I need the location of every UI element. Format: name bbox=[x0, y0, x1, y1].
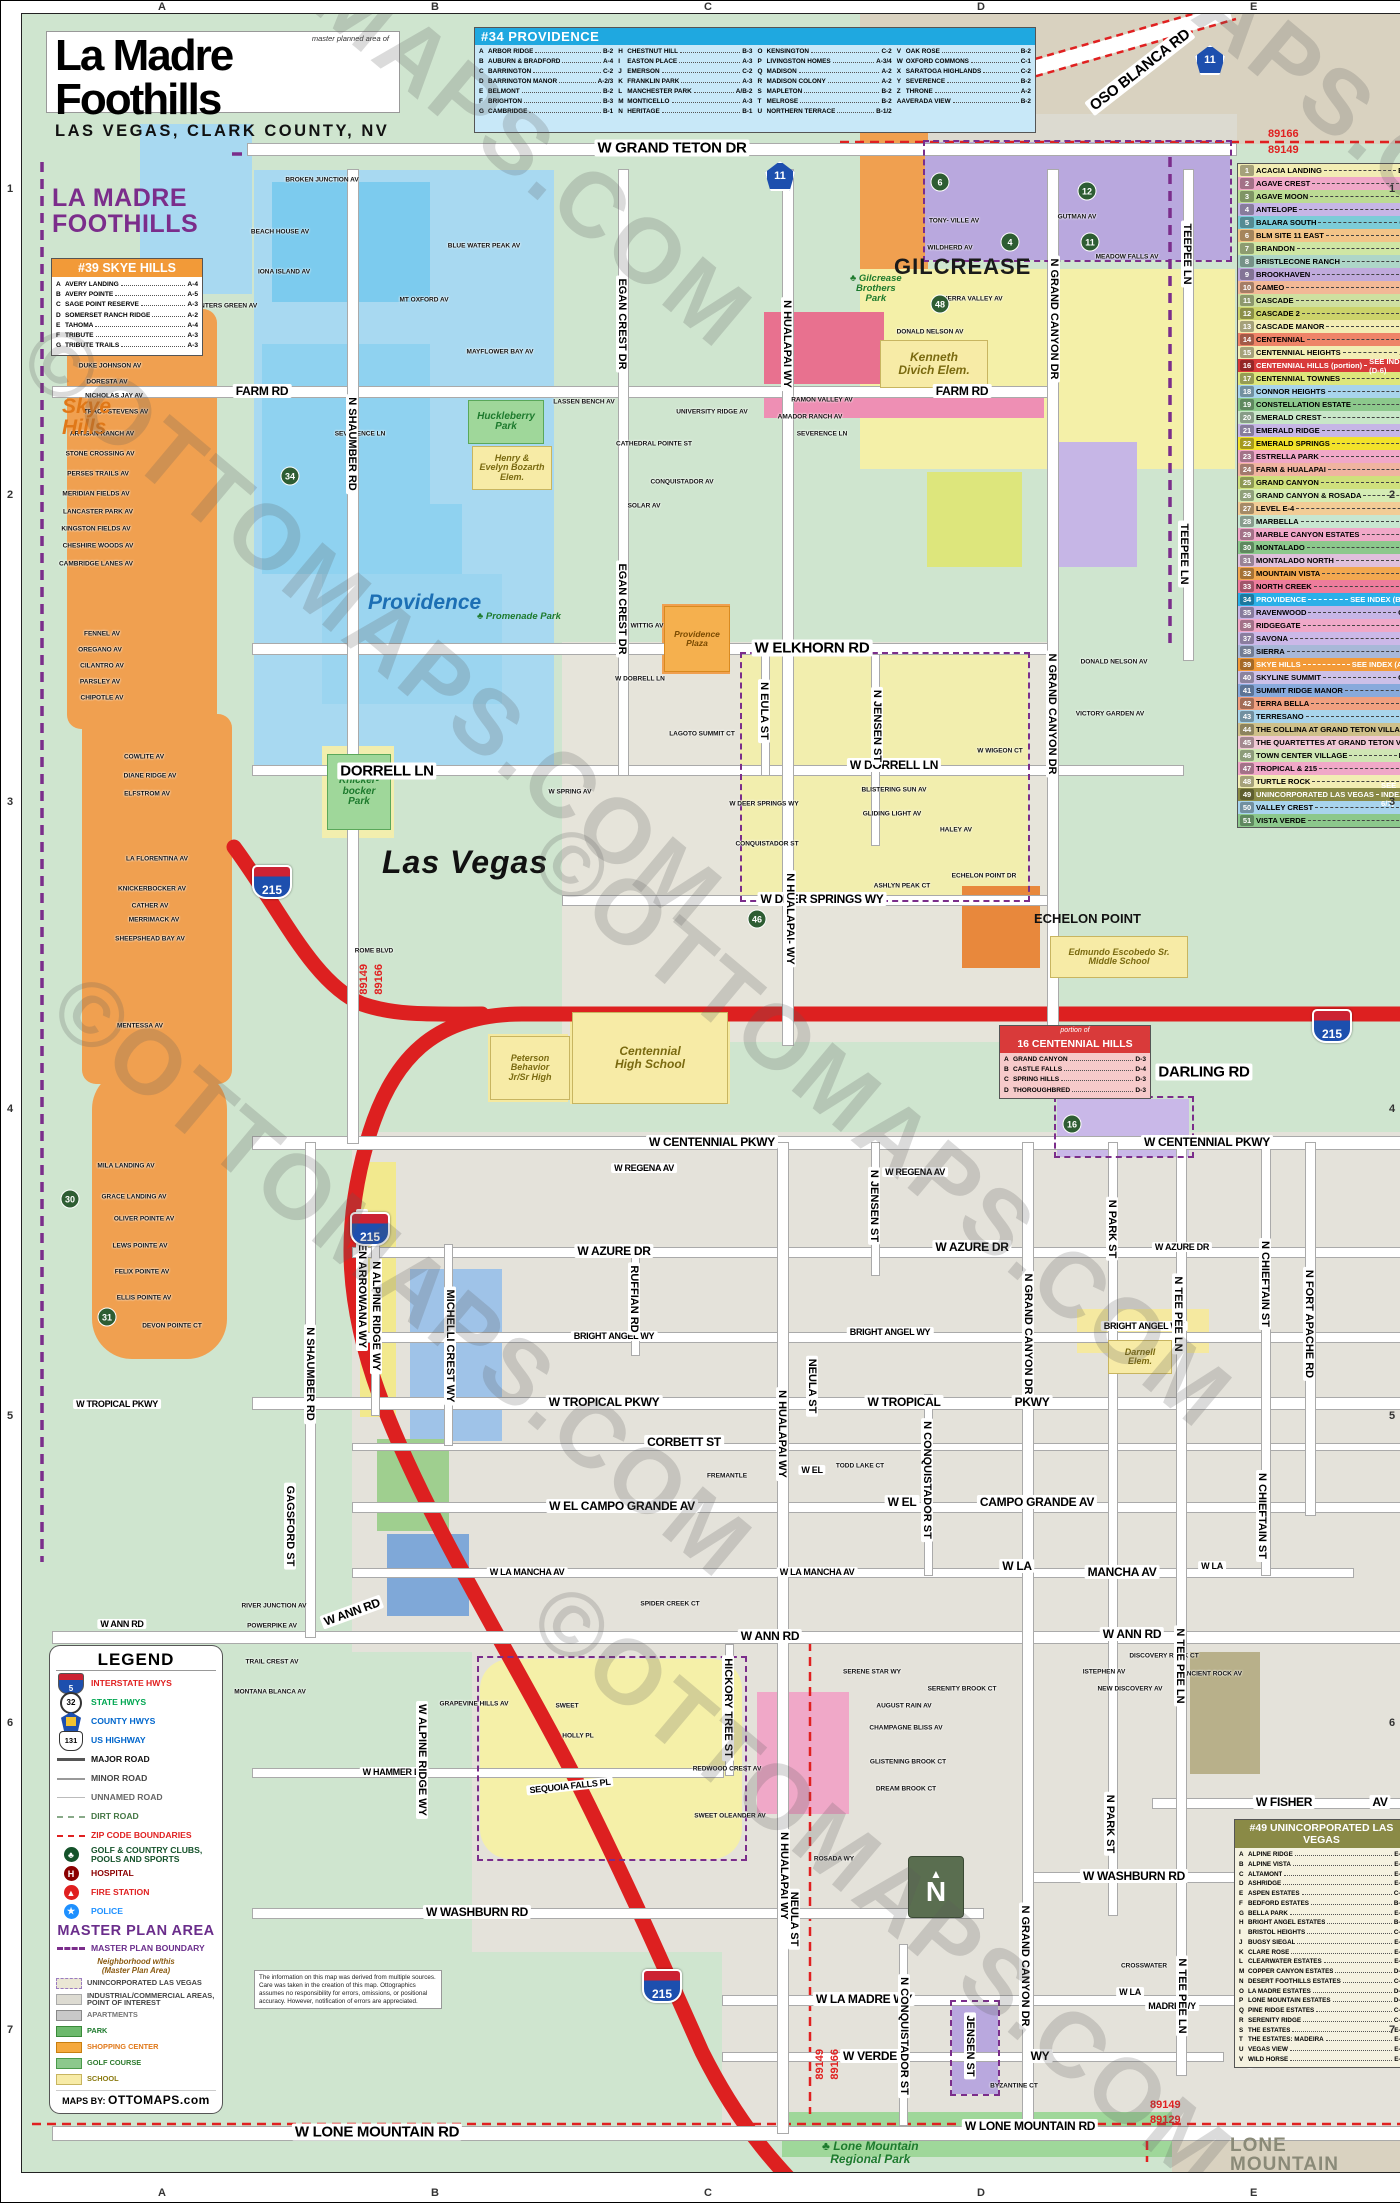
index-entry-letter: G bbox=[479, 107, 488, 117]
index-entry-ref: E-5 bbox=[1394, 1879, 1400, 1889]
community-index-row: 47TROPICAL & 215B-5 bbox=[1238, 762, 1400, 775]
index-entry-ref: E-5 bbox=[1394, 1850, 1400, 1860]
index-entry-name: CASTLE FALLS bbox=[1013, 1065, 1062, 1075]
community-index-leader bbox=[1345, 690, 1400, 691]
index-entry-letter: M bbox=[618, 97, 627, 107]
community-index-name: RAVENWOOD bbox=[1256, 608, 1306, 617]
community-index-row: 40SKYLINE SUMMITC/D-4 bbox=[1238, 671, 1400, 684]
index-entry: B ALPINE VISTAE-5 bbox=[1239, 1860, 1400, 1870]
index-entry: V WILD HORSEE-6 bbox=[1239, 2055, 1400, 2065]
zip-code-label: 89166 bbox=[829, 2049, 841, 2080]
index-entry-letter: B bbox=[1004, 1065, 1013, 1075]
community-index-name: BRISTLECONE RANCH bbox=[1256, 257, 1340, 266]
index-entry-letter: W bbox=[897, 57, 906, 67]
community-index-row: 36RIDGEGATEE-3 bbox=[1238, 619, 1400, 632]
street-label: GLIDING LIGHT AV bbox=[863, 811, 922, 818]
poi-circle-icon: H bbox=[64, 1866, 79, 1881]
legend-road-icon bbox=[56, 1778, 86, 1780]
index-entry-leader bbox=[811, 52, 879, 53]
street-label: MEADOW FALLS AV bbox=[1096, 254, 1159, 261]
index-entry: L MANCHESTER PARKA/B-2 bbox=[618, 87, 752, 97]
community-index-row: 34PROVIDENCESEE INDEX (B-D-1) bbox=[1238, 593, 1400, 606]
community-index-row: 6BLM SITE 11 EASTB-5 bbox=[1238, 229, 1400, 242]
index-entry-ref: B-2 bbox=[603, 87, 613, 97]
street-label: LA FLORENTINA AV bbox=[126, 856, 188, 863]
index-entry-leader bbox=[95, 326, 185, 327]
road-label: HICKORY TREE ST bbox=[722, 1655, 734, 1761]
community-index-row: 50VALLEY CRESTE-2 bbox=[1238, 801, 1400, 814]
index-entry-letter: R bbox=[758, 77, 767, 87]
index-entry-leader bbox=[833, 62, 874, 63]
road-label: DARLING RD bbox=[1155, 1064, 1252, 1081]
index-entry-name: KENSINGTON bbox=[767, 47, 810, 57]
road-label: W ANN RD bbox=[97, 1619, 146, 1629]
community-index-name: MARBLE CANYON ESTATES bbox=[1256, 530, 1360, 539]
road-label: W DORRELL LN bbox=[847, 758, 941, 772]
road-label: N SHAUMBER RD bbox=[346, 394, 358, 494]
street-label: MERRIMACK AV bbox=[129, 917, 180, 924]
community-index-leader bbox=[1297, 248, 1400, 249]
index-entry-ref: B-1/2 bbox=[876, 107, 892, 117]
community-index-number: 22 bbox=[1240, 438, 1254, 449]
grid-row-label: 3 bbox=[7, 796, 13, 808]
index-entry: D THOROUGHBREDD-3 bbox=[1004, 1086, 1146, 1096]
index-entry-name: MAPLETON bbox=[767, 87, 803, 97]
legend-swatch-item: SHOPPING CENTER bbox=[56, 2039, 216, 2055]
index-entry-letter: C bbox=[56, 300, 65, 310]
index-entry-name: HERITAGE bbox=[627, 107, 660, 117]
road-label: W CENTENNIAL PKWY bbox=[1141, 1135, 1273, 1149]
community-index-leader bbox=[1306, 716, 1400, 717]
community-index-name: CAMEO bbox=[1256, 283, 1284, 292]
index-entry-name: AVERY LANDING bbox=[65, 280, 119, 290]
grid-column-label: E bbox=[1250, 2187, 1257, 2199]
legend-road-label: MINOR ROAD bbox=[91, 1774, 147, 1783]
community-index-name: CASCADE 2 bbox=[1256, 309, 1300, 318]
index-entry: H BRIGHT ANGEL ESTATESB-5 bbox=[1239, 1918, 1400, 1928]
community-index-leader bbox=[1323, 417, 1400, 418]
index-entry-leader bbox=[1293, 1865, 1392, 1866]
community-index-leader bbox=[1376, 794, 1379, 795]
zip-code-label: 89149 bbox=[1268, 144, 1299, 156]
index-entry-name: BELMONT bbox=[488, 87, 520, 97]
index-entry-letter: B bbox=[56, 290, 65, 300]
street-label: SERENE STAR WY bbox=[843, 1669, 901, 1676]
index-entry: B AVERY POINTEA-5 bbox=[56, 290, 198, 300]
community-index-row: 46TOWN CENTER VILLAGED/E-3 bbox=[1238, 749, 1400, 762]
community-index-name: SUMMIT RIDGE MANOR bbox=[1256, 686, 1343, 695]
road-label: FARM RD bbox=[233, 384, 292, 398]
community-index-row: 1ACACIA LANDINGB/C-6 bbox=[1238, 164, 1400, 177]
community-index-number: 31 bbox=[1240, 555, 1254, 566]
index-entry: X SARATOGA HIGHLANDSC-2 bbox=[897, 67, 1031, 77]
street-label: UNIVERSITY RIDGE AV bbox=[676, 409, 747, 416]
index-entry-ref: D-5 bbox=[1394, 1967, 1400, 1977]
map-canvas: master planned area of La Madre Foothill… bbox=[21, 13, 1400, 2173]
street-label: HALEY AV bbox=[940, 827, 972, 834]
index-entry: B AUBURN & BRADFORDA-4 bbox=[479, 57, 613, 67]
legend-poi-item: ♣GOLF & COUNTRY CLUBS, POOLS AND SPORTS bbox=[56, 1845, 216, 1864]
community-index-name: CONSTELLATION ESTATE bbox=[1256, 400, 1351, 409]
community-index-number: 17 bbox=[1240, 373, 1254, 384]
community-index-name: BLM SITE 11 EAST bbox=[1256, 231, 1324, 240]
index-entry: N DESERT FOOTHILLS ESTATESC-6 bbox=[1239, 1977, 1400, 1987]
community-index-row: 39SKYE HILLSSEE INDEX (A-1/2) bbox=[1238, 658, 1400, 671]
index-entry-ref: C-5 bbox=[1394, 1889, 1400, 1899]
community-number-badge: 46 bbox=[748, 910, 767, 929]
street-label: BLISTERING SUN AV bbox=[861, 787, 926, 794]
street-label: FELIX POINTE AV bbox=[115, 1269, 170, 1276]
road-label: W GRAND TETON DR bbox=[594, 140, 749, 157]
legend-swatch bbox=[56, 2010, 82, 2021]
community-index-number: 29 bbox=[1240, 529, 1254, 540]
community-index-number: 48 bbox=[1240, 776, 1254, 787]
index-entry: N HERITAGEB-1 bbox=[618, 107, 752, 117]
street-label: WILDHERD AV bbox=[927, 245, 972, 252]
index-entry-letter: H bbox=[1239, 1918, 1248, 1928]
index-entry: F TRIBUTEA-3 bbox=[56, 331, 198, 341]
index-entry-letter: I bbox=[618, 57, 627, 67]
index-entry-name: PINE RIDGE ESTATES bbox=[1248, 2006, 1314, 2016]
grid-row-label: 7 bbox=[1389, 2024, 1395, 2036]
index-entry-name: SARATOGA HIGHLANDS bbox=[906, 67, 982, 77]
index-entry-letter: U bbox=[1239, 2045, 1248, 2055]
street-label: SERENITY BROOK CT bbox=[928, 1686, 997, 1693]
street-label: CHIPOTLE AV bbox=[81, 695, 124, 702]
index-entry: B CASTLE FALLSD-4 bbox=[1004, 1065, 1146, 1075]
index-entry-ref: E-6 bbox=[1394, 2035, 1400, 2045]
index-entry-ref: B-2 bbox=[881, 87, 891, 97]
map-subtitle: LAS VEGAS, CLARK COUNTY, NV bbox=[55, 122, 391, 141]
community-index-row: 42TERRA BELLAD-2 bbox=[1238, 697, 1400, 710]
index-entry-ref: C-5 bbox=[1394, 1928, 1400, 1938]
road-label: W AZURE DR bbox=[932, 1240, 1011, 1254]
master-plan-note: Neighborhood w/this (Master Plan Area) bbox=[56, 1958, 216, 1975]
community-index-row: 38SIERRAD-6 bbox=[1238, 645, 1400, 658]
road-label: N HUALAPAI- WY bbox=[784, 870, 796, 967]
legend-swatch-item: SCHOOL bbox=[56, 2071, 216, 2087]
community-index-leader bbox=[1343, 352, 1398, 353]
road-label: W REGENA AV bbox=[611, 1163, 677, 1173]
legend-highway-item: 131US HIGHWAY bbox=[56, 1731, 216, 1750]
index-entry-leader bbox=[152, 316, 185, 317]
road-label: CAMPO GRANDE AV bbox=[977, 1495, 1097, 1509]
legend-road-icon bbox=[56, 1758, 86, 1761]
index-entry: L CLEARWATER ESTATESE-5 bbox=[1239, 1957, 1400, 1967]
index-entry: O KENSINGTONC-2 bbox=[758, 47, 892, 57]
road-label: N ALPINE RIDGE WY bbox=[370, 1258, 382, 1374]
index-entry-leader bbox=[1326, 2040, 1393, 2041]
index-entry-leader bbox=[1302, 1894, 1392, 1895]
index-entry: AA VERADA VIEWB-2 bbox=[897, 97, 1031, 107]
index-entry-leader bbox=[1290, 1914, 1392, 1915]
index-entry-leader bbox=[1292, 2031, 1392, 2032]
community-index-number: 38 bbox=[1240, 646, 1254, 657]
index-entry: Q MADISONA-2 bbox=[758, 67, 892, 77]
community-index-number: 5 bbox=[1240, 217, 1254, 228]
legend-swatch-item: GOLF COURSE bbox=[56, 2055, 216, 2071]
index-entry-leader bbox=[804, 92, 879, 93]
street-label: IONA ISLAND AV bbox=[258, 269, 310, 276]
road-label: W REGENA AV bbox=[882, 1167, 948, 1177]
index-entry-ref: E-6 bbox=[1394, 2055, 1400, 2065]
street-label: CONQUISTADOR ST bbox=[735, 841, 798, 848]
community-index-leader bbox=[1332, 443, 1400, 444]
road-label: W TROPICAL PKWY bbox=[73, 1399, 161, 1409]
index-entry-leader bbox=[1316, 2011, 1392, 2012]
area-label: Providence bbox=[368, 592, 481, 613]
index-entry-letter: C bbox=[1239, 1870, 1248, 1880]
state-highway-icon: 32 bbox=[60, 1692, 82, 1714]
index-entry: W OXFORD COMMONSC-1 bbox=[897, 57, 1031, 67]
road-label: N GRAND CANYON DR bbox=[1048, 256, 1060, 383]
index-entry-name: LA MADRE ESTATES bbox=[1248, 1987, 1311, 1997]
community-index-row: 32MOUNTAIN VISTAD-7 bbox=[1238, 567, 1400, 580]
community-index-name: MARBELLA bbox=[1256, 517, 1299, 526]
community-index-name: THE QUARTETTES AT GRAND TETON VILLAGE bbox=[1256, 738, 1400, 747]
legend-road-item: MAJOR ROAD bbox=[56, 1750, 216, 1769]
street-label: DISCOVERY ROCK CT bbox=[1129, 1653, 1198, 1660]
index-entry-leader bbox=[1313, 1992, 1392, 1993]
index-entry: R MADISON COLONYA-2 bbox=[758, 77, 892, 87]
street-label: MERIDIAN FIELDS AV bbox=[62, 491, 129, 498]
street-label: TRAIL CREST AV bbox=[246, 1659, 299, 1666]
index-entry-ref: B-1 bbox=[603, 107, 613, 117]
community-index-name: CENTENNIAL HEIGHTS bbox=[1256, 348, 1341, 357]
index-entry-name: EMERSON bbox=[627, 67, 659, 77]
index-entry-letter: A bbox=[479, 47, 488, 57]
index-entry-name: MADISON bbox=[767, 67, 797, 77]
index-entry-leader bbox=[662, 72, 741, 73]
community-index-leader bbox=[1303, 625, 1400, 626]
index-entry-ref: C-2 bbox=[603, 67, 613, 77]
legend-poi-label: POLICE bbox=[91, 1907, 123, 1916]
index-entry-letter: Q bbox=[1239, 2006, 1248, 2016]
community-index-row: 3AGAVE MOONC-3 bbox=[1238, 190, 1400, 203]
community-index-number: 21 bbox=[1240, 425, 1254, 436]
road-label: DORRELL LN bbox=[337, 763, 436, 780]
community-index-leader bbox=[1301, 521, 1400, 522]
road-band bbox=[52, 2126, 1400, 2141]
index-entry-leader bbox=[559, 82, 595, 83]
index-entry: J EMERSONC-2 bbox=[618, 67, 752, 77]
index-entry-name: SPRING HILLS bbox=[1013, 1075, 1059, 1085]
community-index-leader bbox=[1307, 339, 1400, 340]
community-index-row: 18CONNOR HEIGHTSD-3 bbox=[1238, 385, 1400, 398]
index-entry-letter: A bbox=[56, 280, 65, 290]
community-index-name: THE COLLINA AT GRAND TETON VILLAGE bbox=[1256, 725, 1400, 734]
index-entry-name: CAMBRIDGE bbox=[488, 107, 527, 117]
index-entry-ref: A-3 bbox=[187, 341, 198, 351]
index-entry: Z THRONEA-2 bbox=[897, 87, 1031, 97]
community-index-number: 35 bbox=[1240, 607, 1254, 618]
community-index-name: UNINCORPORATED LAS VEGAS bbox=[1256, 790, 1374, 799]
legend-swatch bbox=[56, 2058, 82, 2069]
area-label: Las Vegas bbox=[382, 846, 548, 879]
index-entry-leader bbox=[799, 72, 880, 73]
road-label: W FISHER bbox=[1253, 1795, 1315, 1809]
legend-poi-item: ★POLICE bbox=[56, 1902, 216, 1921]
community-index-row: 5BALARA SOUTHC-4,5 bbox=[1238, 216, 1400, 229]
road-label: W LA bbox=[999, 1559, 1034, 1573]
road-label: W ALPINE RIDGE WY bbox=[416, 1701, 428, 1819]
zip-code-label: 89166 bbox=[373, 964, 385, 995]
community-index-row: 9BROOKHAVENE-1 bbox=[1238, 268, 1400, 281]
skye-hills-index-panel: #39 SKYE HILLS A AVERY LANDINGA-4B AVERY… bbox=[52, 259, 202, 355]
community-index-row: 30MONTALADOA-6 bbox=[1238, 541, 1400, 554]
street-label: AMADOR RANCH AV bbox=[778, 414, 843, 421]
index-entry-leader bbox=[680, 52, 740, 53]
community-index-row: 45THE QUARTETTES AT GRAND TETON VILLAGED… bbox=[1238, 736, 1400, 749]
index-entry-leader bbox=[524, 102, 601, 103]
legend-poi-item: HHOSPITAL bbox=[56, 1864, 216, 1883]
community-index-name: AGAVE MOON bbox=[1256, 192, 1308, 201]
index-entry: F BRIGHTONB-3 bbox=[479, 97, 613, 107]
index-entry: S MAPLETONB-2 bbox=[758, 87, 892, 97]
index-entry-name: VEGAS VIEW bbox=[1248, 2045, 1288, 2055]
grid-row-label: 4 bbox=[7, 1103, 13, 1115]
community-index-leader bbox=[1322, 430, 1400, 431]
index-entry-name: TRIBUTE bbox=[65, 331, 94, 341]
index-entry-letter: D bbox=[479, 77, 488, 87]
community-index-name: MONTALADO NORTH bbox=[1256, 556, 1334, 565]
index-entry-leader bbox=[1303, 2021, 1392, 2022]
road-label: W TROPICAL PKWY bbox=[546, 1395, 663, 1409]
community-index-leader bbox=[1319, 768, 1400, 769]
us-highway-icon: 131 bbox=[59, 1731, 83, 1751]
road-label: N TEE PEE LN bbox=[1176, 1955, 1188, 2036]
community-index-number: 33 bbox=[1240, 581, 1254, 592]
road-label: W WASHBURN RD bbox=[423, 1905, 531, 1919]
index-entry-name: BRIGHTON bbox=[488, 97, 522, 107]
index-entry-ref: A-2 bbox=[881, 77, 891, 87]
community-index-leader bbox=[1314, 586, 1400, 587]
index-entry-name: AUBURN & BRADFORD bbox=[488, 57, 560, 67]
legend-road-icon bbox=[56, 1816, 86, 1818]
street-label: MONTANA BLANCA AV bbox=[234, 1689, 306, 1696]
street-label: DORESTA AV bbox=[86, 379, 127, 386]
community-index-number: 8 bbox=[1240, 256, 1254, 267]
index-entry-leader bbox=[1061, 1080, 1133, 1081]
index-entry: D BARRINGTON MANORA-2/3 bbox=[479, 77, 613, 87]
community-index-name: CASCADE bbox=[1256, 296, 1294, 305]
county-highway-icon bbox=[61, 1712, 81, 1731]
street-label: CATHER AV bbox=[132, 903, 169, 910]
index-entry-leader bbox=[535, 52, 600, 53]
legend-highway-label: COUNTY HWYS bbox=[91, 1717, 155, 1726]
community-index-ref: SEE INDEX (A-1/2) bbox=[1352, 660, 1400, 669]
legend-swatch-label: PARK bbox=[87, 2027, 107, 2034]
street-label: ISTEPHEN AV bbox=[1083, 1669, 1126, 1676]
index-entry-name: NORTHERN TERRACE bbox=[767, 107, 836, 117]
community-index-number: 47 bbox=[1240, 763, 1254, 774]
road-label: W ANN RD bbox=[1100, 1627, 1164, 1641]
community-index-leader bbox=[1308, 612, 1396, 613]
index-entry-leader bbox=[679, 62, 740, 63]
road-label: MADRE WY bbox=[1145, 2001, 1199, 2011]
index-entry-name: LONE MOUNTAIN ESTATES bbox=[1248, 1996, 1331, 2006]
community-index-leader bbox=[1308, 599, 1348, 600]
road-label: FARM RD bbox=[933, 384, 992, 398]
street-label: KNICKERBOCKER AV bbox=[118, 886, 186, 893]
index-entry-name: ASPEN ESTATES bbox=[1248, 1889, 1300, 1899]
legend-highway-item: 5INTERSTATE HWYS bbox=[56, 1674, 216, 1693]
street-label: ANCIENT ROCK AV bbox=[1182, 1671, 1242, 1678]
index-entry: D SOMERSET RANCH RIDGEA-2 bbox=[56, 311, 198, 321]
index-entry: I EASTON PLACEA-3 bbox=[618, 57, 752, 67]
index-entry-name: BEDFORD ESTATES bbox=[1248, 1899, 1309, 1909]
legend-poi-label: GOLF & COUNTRY CLUBS, POOLS AND SPORTS bbox=[91, 1846, 202, 1863]
index-entry-leader bbox=[1291, 1953, 1392, 1954]
community-index-row: 13CASCADE MANORD-4 bbox=[1238, 320, 1400, 333]
index-entry-ref: E-6 bbox=[1394, 2045, 1400, 2055]
index-entry-ref: A-2 bbox=[881, 67, 891, 77]
community-index-number: 51 bbox=[1240, 815, 1254, 826]
community-number-badge: 34 bbox=[281, 467, 300, 486]
community-index-leader bbox=[1321, 482, 1400, 483]
area-label: Skye Hills bbox=[62, 396, 111, 439]
legend-title: LEGEND bbox=[56, 1650, 216, 1671]
index-entry: A ALPINE RIDGEE-5 bbox=[1239, 1850, 1400, 1860]
interstate-215-shield-icon: 215 bbox=[252, 865, 292, 899]
community-index-leader bbox=[1322, 573, 1400, 574]
index-entry: U VEGAS VIEWE-6 bbox=[1239, 2045, 1400, 2055]
poi-school: Centennial High School bbox=[572, 1012, 728, 1104]
legend-poi-icon: H bbox=[56, 1866, 86, 1881]
street-label: PARSLEY AV bbox=[80, 679, 120, 686]
index-entry-name: SAGE POINT RESERVE bbox=[65, 300, 139, 310]
community-index-number: 41 bbox=[1240, 685, 1254, 696]
street-label: SOLAR AV bbox=[628, 503, 661, 510]
legend-swatch-label: APARTMENTS bbox=[87, 2011, 138, 2018]
centennial-index-entries: A GRAND CANYOND-3B CASTLE FALLSD-4C SPRI… bbox=[1000, 1053, 1150, 1098]
index-entry: Y SEVERENCEB-2 bbox=[897, 77, 1031, 87]
community-index-ref: SEE INDEX (B-D-1) bbox=[1350, 595, 1400, 604]
credit-line: MAPS BY: OTTOMAPS.com bbox=[56, 2090, 216, 2107]
legend-highway-label: INTERSTATE HWYS bbox=[91, 1679, 172, 1688]
index-entry-leader bbox=[121, 285, 186, 286]
index-entry-name: MADISON COLONY bbox=[767, 77, 826, 87]
index-entry-ref: D-3 bbox=[1135, 1086, 1146, 1096]
community-index-row: 35RAVENWOODC/D-2 bbox=[1238, 606, 1400, 619]
road-label: W WASHBURN RD bbox=[1080, 1869, 1188, 1883]
street-label: POWERPIKE AV bbox=[247, 1623, 297, 1630]
index-entry-letter: C bbox=[1004, 1075, 1013, 1085]
index-entry-letter: X bbox=[897, 67, 906, 77]
index-entry-ref: B-1 bbox=[742, 107, 752, 117]
street-label: W DOBRELL LN bbox=[615, 676, 665, 683]
index-entry: C SPRING HILLSD-3 bbox=[1004, 1075, 1146, 1085]
index-entry-leader bbox=[96, 336, 186, 337]
index-entry: V OAK ROSEB-2 bbox=[897, 47, 1031, 57]
street-label: KINGSTON FIELDS AV bbox=[61, 526, 130, 533]
index-entry-ref: B-5 bbox=[1394, 1918, 1400, 1928]
street-label: CHESHIRE WOODS AV bbox=[63, 543, 134, 550]
index-entry: G BELLA PARKE-4 bbox=[1239, 1909, 1400, 1919]
community-index-leader bbox=[1296, 300, 1400, 301]
index-entry-name: SEVERENCE bbox=[906, 77, 945, 87]
poi-park: Huckleberry Park bbox=[468, 400, 544, 444]
community-index-name: MOUNTAIN VISTA bbox=[1256, 569, 1320, 578]
index-entry: E BELMONTB-2 bbox=[479, 87, 613, 97]
index-entry-ref: C-2 bbox=[1021, 67, 1031, 77]
index-entry-name: ASHRIDGE bbox=[1248, 1879, 1281, 1889]
index-entry-letter: V bbox=[1239, 2055, 1248, 2065]
street-label: GRAPEVINE HILLS AV bbox=[440, 1701, 509, 1708]
community-index-name: AGAVE CREST bbox=[1256, 179, 1310, 188]
road-label: N CHIEFTAIN ST bbox=[1259, 1238, 1271, 1330]
road-label: W LA bbox=[1198, 1561, 1226, 1571]
